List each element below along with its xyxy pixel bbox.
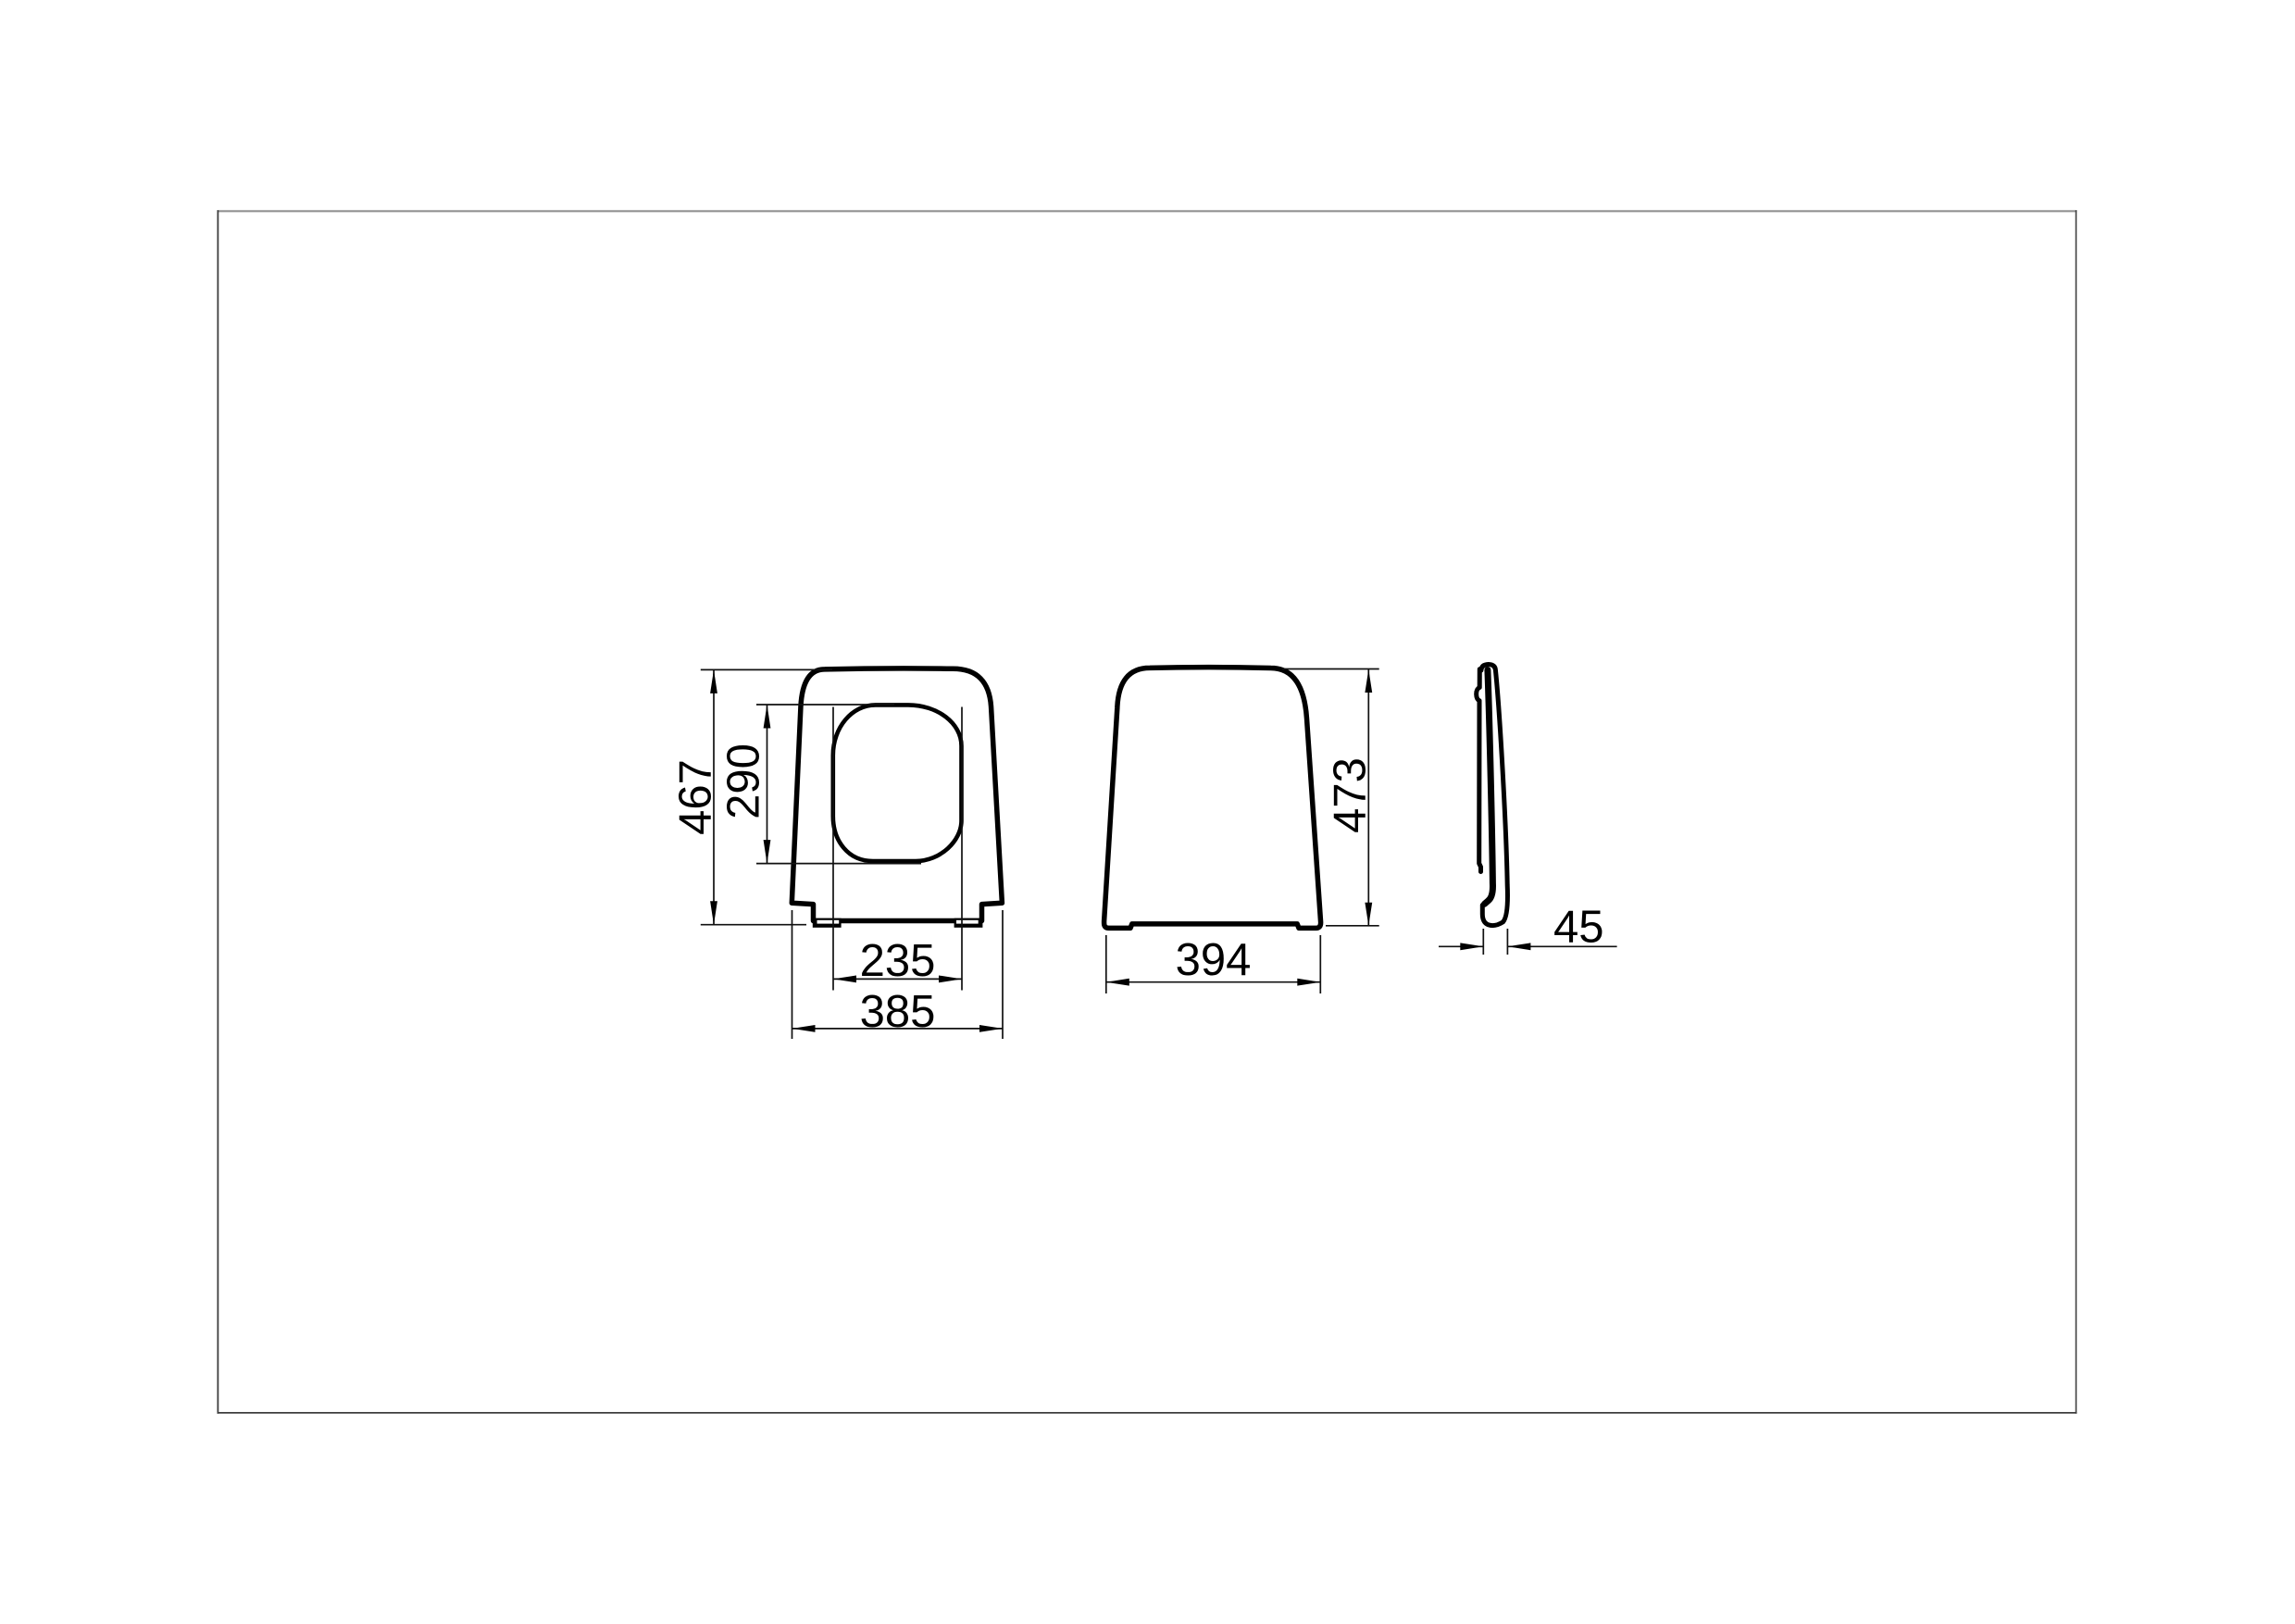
svg-text:45: 45 <box>1553 903 1604 953</box>
svg-text:385: 385 <box>860 987 936 1037</box>
svg-text:473: 473 <box>1326 757 1376 833</box>
svg-text:290: 290 <box>719 743 769 819</box>
svg-text:467: 467 <box>671 759 721 835</box>
svg-text:394: 394 <box>1176 935 1252 985</box>
svg-text:235: 235 <box>860 936 936 986</box>
